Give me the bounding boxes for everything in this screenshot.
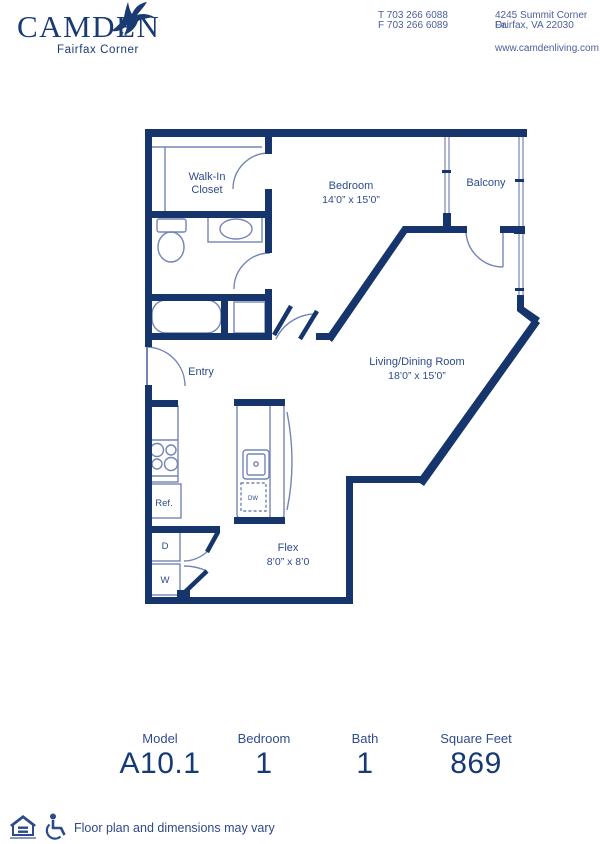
wall-tub-top xyxy=(145,294,272,301)
stat-model-label: Model xyxy=(105,731,215,746)
stat-bath-value: 1 xyxy=(310,747,420,781)
closet-label-line2: Closet xyxy=(191,184,222,196)
washer-label: W xyxy=(161,575,170,586)
stat-bath-label: Bath xyxy=(310,731,420,746)
wall-bath-bedroom xyxy=(265,217,272,253)
wall-living-diagonal-lower xyxy=(417,318,540,486)
island-counter-curve xyxy=(287,412,292,510)
floorplan-page: CAMDEN Fairfax Corner T 703 266 6088 F 7… xyxy=(0,0,600,844)
wall-bedroom-bottom xyxy=(403,226,467,233)
stat-sqft-value: 869 xyxy=(421,747,531,781)
toilet xyxy=(157,219,186,262)
closet-door-arc xyxy=(233,153,269,189)
equal-housing-icon xyxy=(8,814,38,840)
entry-label: Entry xyxy=(188,366,214,378)
stat-model-value: A10.1 xyxy=(105,747,215,781)
wall-living-step xyxy=(346,476,423,483)
dryer-door-arc xyxy=(184,552,207,561)
wall-closet-divider-top xyxy=(265,133,272,154)
wall-island-bottom-cap xyxy=(234,517,285,524)
bedroom-label: Bedroom xyxy=(329,180,374,192)
dryer-door-leaf xyxy=(207,532,218,552)
wheelchair-accessible-icon xyxy=(44,813,68,841)
wall-left-upper xyxy=(145,129,152,347)
wall-living-diagonal-upper xyxy=(326,226,409,342)
wall-laundry-top xyxy=(145,526,220,533)
bathroom-door-arc xyxy=(234,253,270,289)
bathtub xyxy=(152,300,221,333)
washer-door-arc xyxy=(184,566,207,571)
stat-sqft-label: Square Feet xyxy=(421,731,531,746)
balcony-label: Balcony xyxy=(466,177,506,189)
dishwasher-label: DW xyxy=(248,496,258,502)
wall-bottom xyxy=(145,597,353,604)
stat-sqft: Square Feet 869 xyxy=(421,731,531,781)
stat-bedroom-label: Bedroom xyxy=(209,731,319,746)
stove-burners xyxy=(151,444,178,471)
stat-model: Model A10.1 xyxy=(105,731,215,781)
wall-top xyxy=(145,129,527,137)
stat-bath: Bath 1 xyxy=(310,731,420,781)
wall-left-lower xyxy=(145,385,152,604)
wall-flex-right xyxy=(346,478,353,604)
living-dims: 18’0” x 15’0” xyxy=(388,370,446,382)
vanity-sink xyxy=(208,217,262,242)
dryer-label: D xyxy=(162,541,169,552)
bedroom-balcony-window xyxy=(445,135,449,213)
stat-bedroom: Bedroom 1 xyxy=(209,731,319,781)
wall-island-top-cap xyxy=(234,399,285,406)
wall-bath-bottom xyxy=(145,333,272,340)
entry-door-arc xyxy=(146,347,185,386)
flex-label: Flex xyxy=(278,542,299,554)
wall-window-stub xyxy=(443,213,451,233)
flex-dims: 8’0” x 8’0 xyxy=(267,556,310,568)
floorplan-drawing: Walk-In Closet Bedroom 14’0” x 15’0” Bal… xyxy=(0,0,600,844)
fridge-label: Ref. xyxy=(155,498,172,509)
washer-door-leaf xyxy=(185,571,207,592)
closet-label-line1: Walk-In xyxy=(189,171,226,183)
shower-pan xyxy=(234,302,265,333)
wall-bath-top xyxy=(145,211,272,218)
bedroom-dims: 14’0” x 15’0” xyxy=(322,194,380,206)
disclaimer-text: Floor plan and dimensions may vary xyxy=(74,821,275,835)
wall-hall-stub xyxy=(316,333,332,340)
kitchen-island xyxy=(237,404,292,518)
shower-door-leaf xyxy=(274,306,291,335)
stat-bedroom-value: 1 xyxy=(209,747,319,781)
balcony-door-arc xyxy=(466,230,503,267)
wall-right-jog xyxy=(517,295,540,325)
wall-balcony-corner xyxy=(514,226,525,234)
balcony-railing-window xyxy=(519,136,523,296)
living-label: Living/Dining Room xyxy=(369,356,464,368)
wall-kitchen-cap xyxy=(145,400,178,407)
